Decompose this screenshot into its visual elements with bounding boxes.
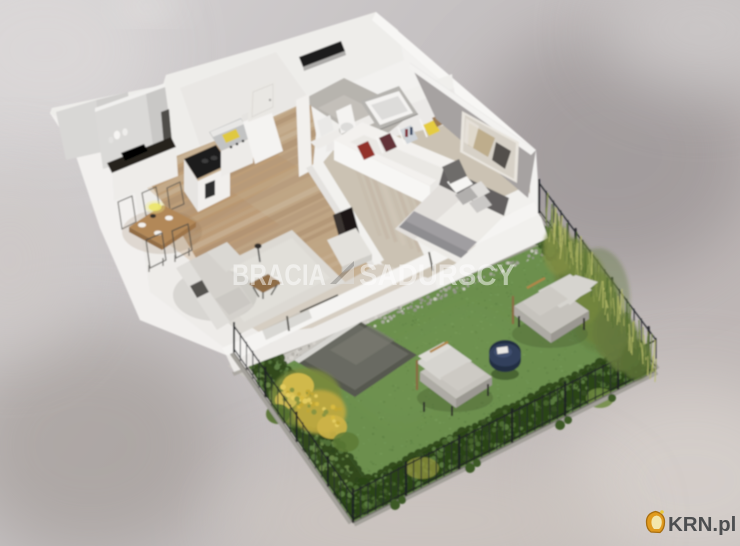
svg-text:SADURSCY: SADURSCY <box>359 259 515 292</box>
svg-text:KRN.pl: KRN.pl <box>668 513 736 536</box>
svg-text:BRACIA: BRACIA <box>232 259 326 292</box>
